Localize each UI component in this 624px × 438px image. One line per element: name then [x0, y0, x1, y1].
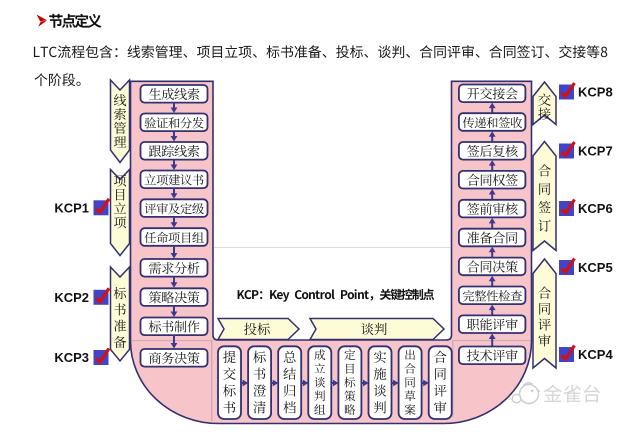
svg-text:KCP1: KCP1: [54, 200, 89, 215]
svg-text:KCP3: KCP3: [54, 350, 89, 365]
svg-text:KCP4: KCP4: [578, 347, 613, 362]
svg-text:KCP5: KCP5: [578, 260, 613, 275]
svg-text:KCP6: KCP6: [578, 201, 613, 216]
svg-text:KCP7: KCP7: [578, 144, 613, 159]
svg-text:KCP8: KCP8: [578, 85, 613, 100]
svg-text:KCP2: KCP2: [54, 290, 89, 305]
